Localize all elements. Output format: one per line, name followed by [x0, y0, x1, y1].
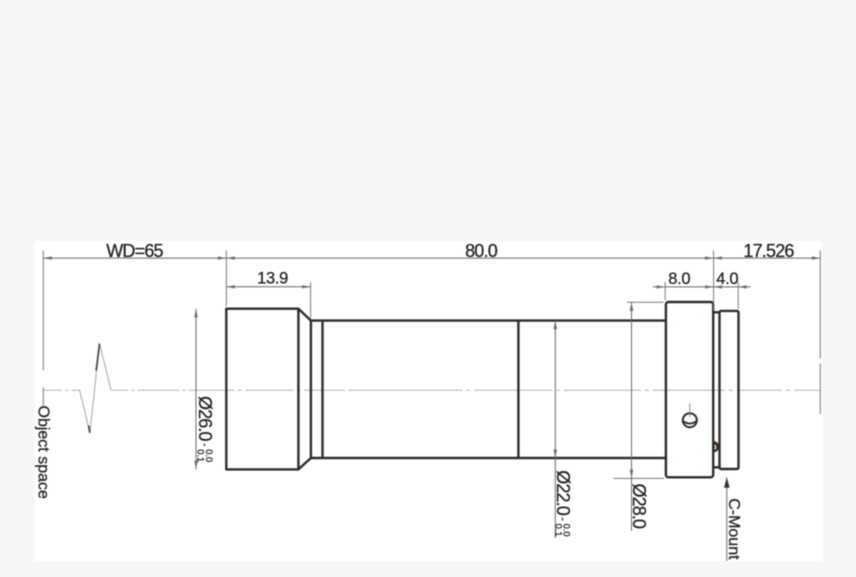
svg-text:0.1: 0.1 — [553, 524, 563, 537]
svg-text:8.0: 8.0 — [668, 270, 690, 288]
svg-text:WD=65: WD=65 — [106, 241, 163, 261]
svg-text:Ø26.0: Ø26.0 — [195, 396, 215, 441]
svg-text:13.9: 13.9 — [257, 270, 288, 288]
svg-text:17.526: 17.526 — [743, 241, 794, 261]
svg-text:-: - — [199, 443, 211, 447]
svg-text:Object space: Object space — [34, 406, 51, 499]
svg-text:-: - — [556, 517, 568, 521]
svg-text:80.0: 80.0 — [465, 241, 498, 261]
svg-text:C-Mount: C-Mount — [725, 498, 742, 560]
svg-text:Ø22.0: Ø22.0 — [553, 470, 573, 515]
svg-text:0.1: 0.1 — [196, 449, 206, 462]
svg-text:Ø28.0: Ø28.0 — [629, 484, 649, 529]
svg-text:4.0: 4.0 — [716, 270, 738, 288]
